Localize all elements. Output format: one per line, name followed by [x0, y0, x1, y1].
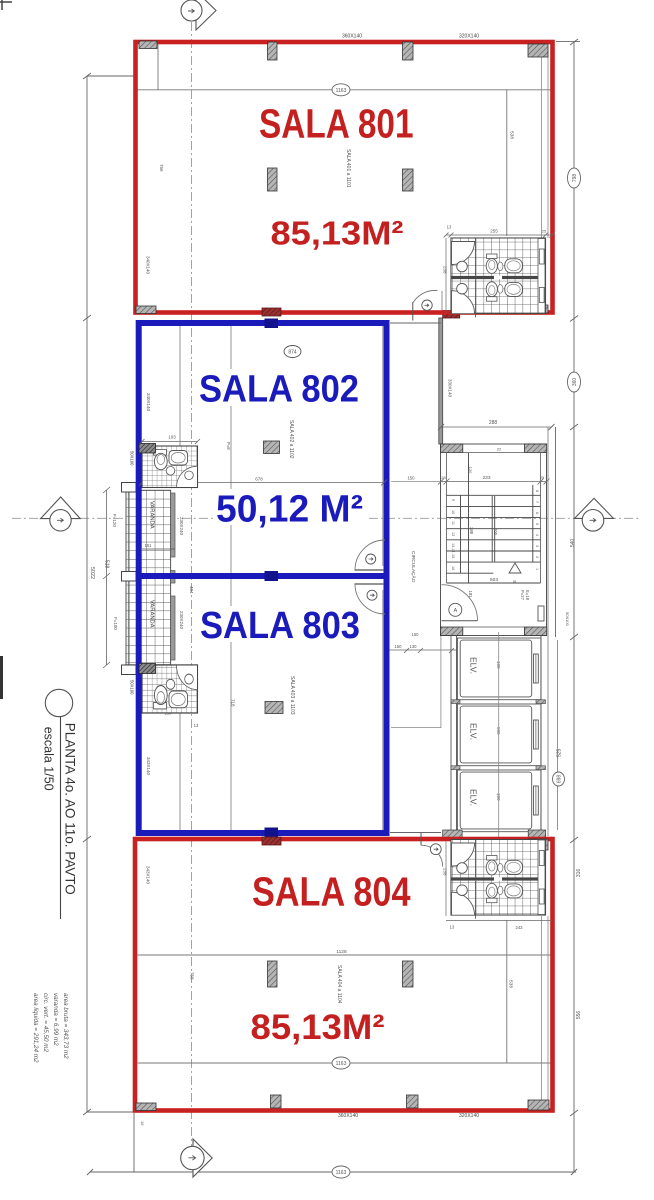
svg-text:758: 758	[190, 972, 195, 980]
svg-text:P=8: P=8	[226, 442, 231, 450]
svg-text:area bruta = 343,73 m2: area bruta = 343,73 m2	[62, 993, 69, 1059]
svg-text:50,12 M²: 50,12 M²	[216, 489, 363, 531]
svg-text:S: S	[512, 580, 517, 583]
svg-text:243: 243	[516, 925, 524, 930]
svg-text:2: 2	[535, 556, 539, 558]
svg-text:538: 538	[508, 980, 514, 988]
svg-text:5022: 5022	[89, 567, 95, 579]
svg-text:SALA 403 a 1103: SALA 403 a 1103	[289, 676, 295, 715]
svg-text:233: 233	[482, 475, 490, 481]
svg-text:230X240: 230X240	[179, 517, 184, 536]
svg-text:50X100: 50X100	[130, 451, 135, 466]
svg-text:E=18: E=18	[525, 590, 530, 601]
svg-text:SALA 803: SALA 803	[200, 605, 360, 647]
svg-text:escala 1/50: escala 1/50	[42, 727, 56, 791]
svg-text:798: 798	[572, 174, 578, 183]
svg-text:85,13M²: 85,13M²	[271, 216, 404, 253]
svg-text:F=100: F=100	[113, 617, 118, 630]
svg-text:P=27: P=27	[520, 590, 525, 601]
svg-text:1163: 1163	[336, 1170, 347, 1176]
svg-text:10: 10	[451, 510, 455, 514]
svg-text:238: 238	[443, 266, 448, 274]
svg-text:388: 388	[469, 527, 474, 535]
svg-text:VARANDA: VARANDA	[149, 600, 155, 628]
svg-text:ELV.: ELV.	[469, 657, 479, 674]
svg-text:1: 1	[535, 568, 539, 570]
svg-text:25: 25	[542, 229, 547, 234]
svg-text:8: 8	[535, 490, 539, 492]
svg-text:11: 11	[451, 521, 455, 525]
svg-text:230X240: 230X240	[179, 611, 184, 630]
svg-text:F=120: F=120	[112, 514, 117, 527]
svg-text:181: 181	[468, 591, 473, 599]
svg-text:5: 5	[535, 523, 539, 525]
svg-text:SALA 402 a 1102: SALA 402 a 1102	[288, 420, 294, 459]
svg-text:13: 13	[447, 225, 452, 230]
svg-text:130: 130	[410, 644, 418, 649]
svg-text:320X140: 320X140	[459, 1113, 479, 1119]
svg-text:343X140: 343X140	[146, 866, 151, 885]
svg-text:13,14: 13,14	[451, 543, 455, 553]
svg-text:1163: 1163	[336, 1061, 347, 1067]
svg-text:120: 120	[468, 467, 473, 474]
svg-text:50X100: 50X100	[130, 680, 135, 695]
svg-text:538: 538	[509, 131, 515, 139]
svg-text:1128: 1128	[336, 949, 347, 955]
svg-text:400: 400	[493, 528, 498, 536]
svg-text:150: 150	[412, 632, 420, 637]
svg-text:SALA 401 a 1101: SALA 401 a 1101	[345, 149, 351, 188]
svg-text:PLANTA 4o. AO 11o. PAVTO: PLANTA 4o. AO 11o. PAVTO	[63, 723, 78, 895]
svg-text:SALA 404 a 1104: SALA 404 a 1104	[336, 965, 342, 1004]
svg-text:698: 698	[556, 775, 562, 784]
svg-text:varanda = 6,99 m2: varanda = 6,99 m2	[52, 993, 59, 1046]
svg-text:4: 4	[535, 534, 539, 536]
svg-text:503: 503	[490, 577, 498, 583]
svg-text:A: A	[453, 608, 457, 614]
svg-text:343X140: 343X140	[146, 757, 151, 776]
svg-text:150: 150	[408, 476, 416, 481]
svg-text:540: 540	[570, 539, 576, 548]
svg-text:16: 16	[140, 1121, 145, 1126]
svg-text:ELV.: ELV.	[469, 789, 479, 806]
svg-text:525: 525	[557, 748, 563, 757]
svg-text:518: 518	[104, 560, 110, 569]
svg-text:320X140: 320X140	[459, 34, 479, 40]
svg-text:area liquida = 291,24 m2: area liquida = 291,24 m2	[32, 993, 39, 1063]
svg-text:874: 874	[288, 350, 297, 356]
svg-text:SALA 802: SALA 802	[199, 369, 359, 411]
svg-text:15: 15	[451, 554, 455, 558]
svg-text:VARANDA: VARANDA	[149, 501, 155, 529]
svg-text:9: 9	[451, 499, 455, 501]
svg-text:ELV.: ELV.	[469, 723, 479, 740]
svg-text:50X100: 50X100	[565, 612, 570, 627]
svg-text:103: 103	[168, 435, 176, 440]
svg-text:316: 316	[576, 869, 582, 878]
svg-text:360X140: 360X140	[338, 1113, 358, 1119]
svg-text:SALA 804: SALA 804	[252, 868, 411, 914]
svg-text:13: 13	[450, 925, 455, 930]
svg-text:13: 13	[194, 723, 199, 728]
svg-text:288: 288	[489, 420, 498, 426]
svg-text:330X140: 330X140	[448, 379, 453, 398]
svg-text:756: 756	[159, 164, 164, 172]
svg-text:255: 255	[490, 229, 498, 234]
svg-text:238: 238	[443, 868, 448, 876]
svg-text:circ. vert. = 45,50 m2: circ. vert. = 45,50 m2	[42, 993, 49, 1052]
svg-text:CIRCULAÇÃO: CIRCULAÇÃO	[410, 551, 417, 583]
svg-text:556: 556	[576, 1011, 582, 1020]
svg-text:1163: 1163	[336, 88, 347, 94]
svg-text:16: 16	[451, 566, 455, 570]
svg-text:6: 6	[535, 512, 539, 514]
svg-text:150: 150	[395, 644, 403, 649]
svg-text:484: 484	[189, 586, 194, 594]
svg-text:151: 151	[145, 543, 153, 548]
svg-text:340X140: 340X140	[146, 393, 151, 412]
svg-text:25: 25	[441, 475, 446, 480]
svg-text:12: 12	[451, 532, 455, 536]
svg-text:340X140: 340X140	[145, 256, 150, 275]
svg-text:678: 678	[255, 477, 263, 482]
svg-text:3: 3	[535, 545, 539, 547]
svg-text:85,13M²: 85,13M²	[251, 1008, 385, 1047]
svg-text:SALA 801: SALA 801	[259, 101, 414, 147]
svg-text:7: 7	[535, 501, 539, 503]
svg-text:360: 360	[572, 378, 578, 387]
svg-text:360X140: 360X140	[342, 34, 362, 40]
svg-text:25: 25	[540, 475, 545, 480]
svg-text:22: 22	[497, 447, 502, 452]
svg-text:718: 718	[231, 699, 236, 707]
